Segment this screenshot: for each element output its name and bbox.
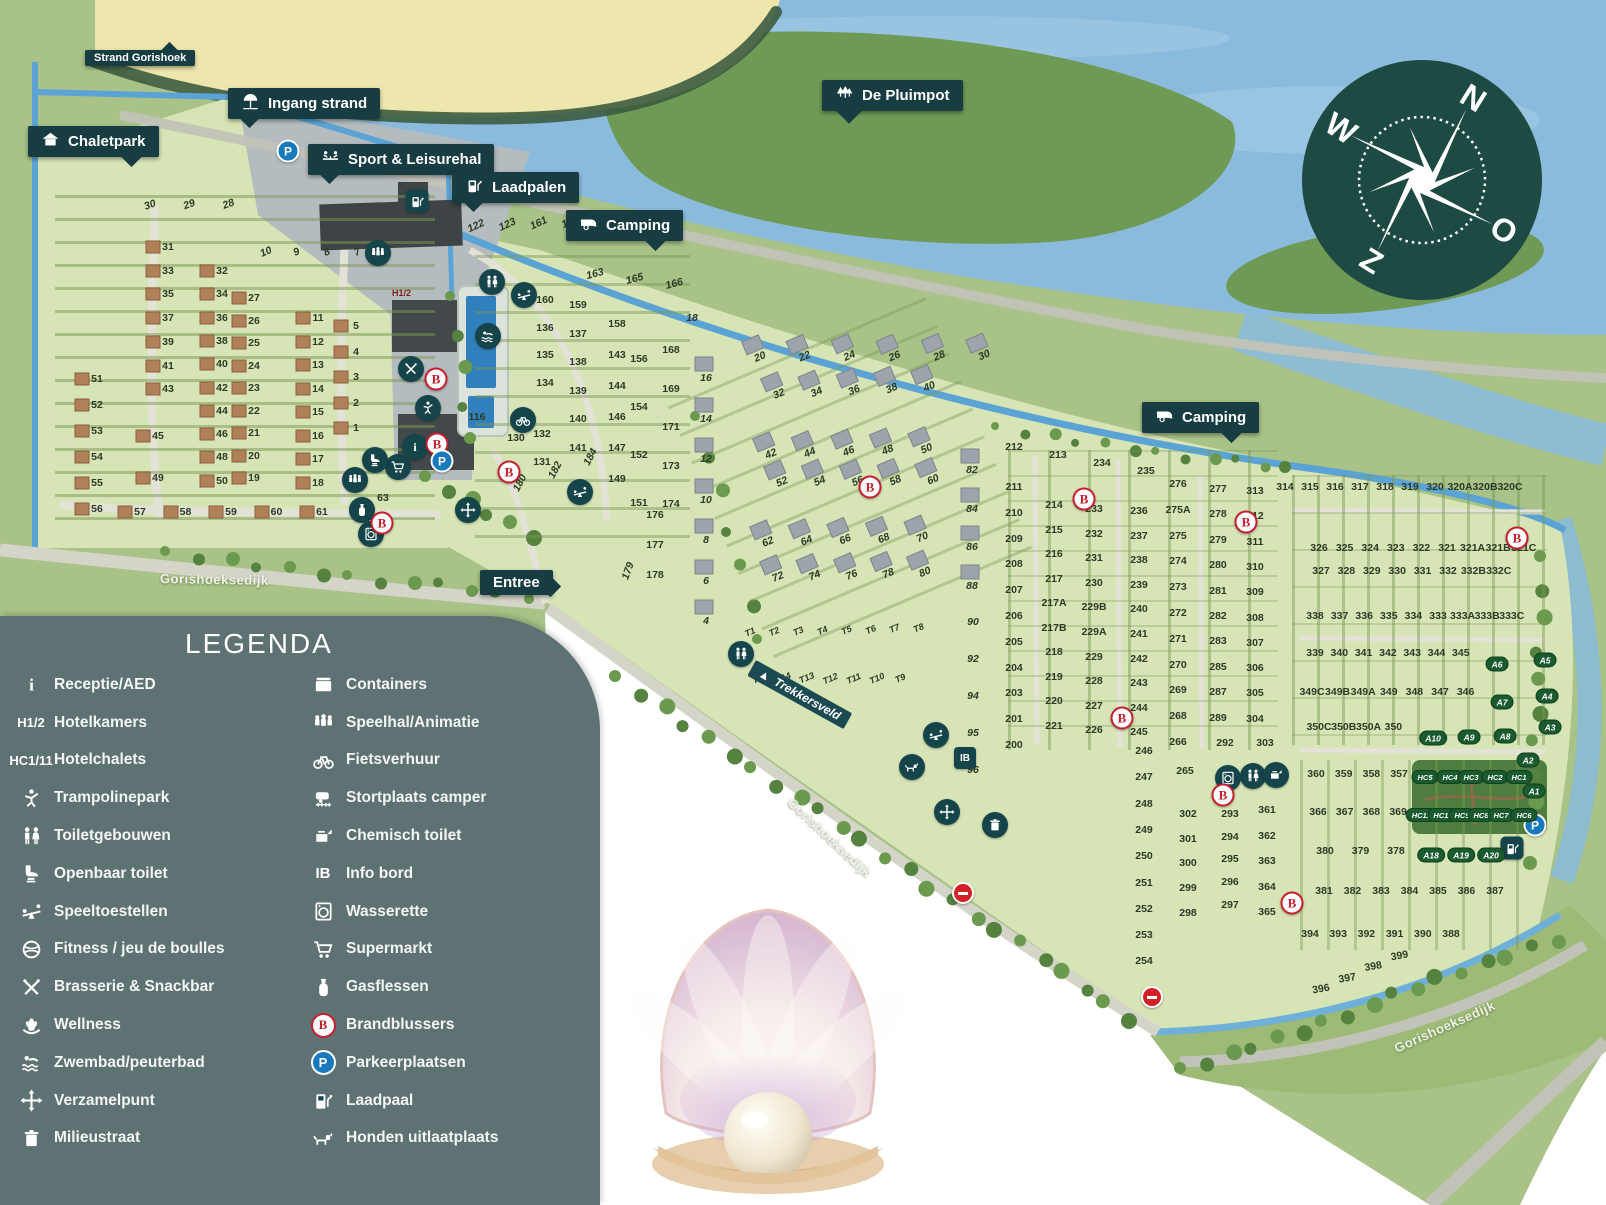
bike-icon bbox=[300, 749, 346, 772]
legend-item-trampoline: Trampolinepark bbox=[8, 779, 225, 817]
chalet-building bbox=[334, 371, 349, 384]
dog-icon bbox=[300, 1127, 346, 1150]
chalet-building bbox=[146, 241, 161, 254]
plot-number: 334 bbox=[1405, 610, 1423, 622]
chalet-building bbox=[200, 404, 215, 417]
plot-number: 32 bbox=[216, 265, 228, 277]
legend-item-chem-toilet: Chemisch toilet bbox=[300, 817, 498, 855]
plot-number: 216 bbox=[1045, 548, 1063, 560]
plot-number: 55 bbox=[91, 477, 103, 489]
chalet-building bbox=[200, 358, 215, 371]
plot-number: 16 bbox=[312, 430, 324, 442]
plot-number: 3 bbox=[353, 371, 359, 383]
plot-number: 38 bbox=[216, 335, 228, 347]
trees-icon bbox=[835, 84, 854, 107]
marker-assembly bbox=[455, 497, 481, 523]
plot-number: 320C bbox=[1497, 481, 1522, 493]
public-toilet-icon bbox=[8, 862, 54, 885]
plot-number: 332 bbox=[1439, 565, 1457, 577]
plot-number: 13 bbox=[312, 359, 324, 371]
camper-hardstanding bbox=[695, 478, 714, 493]
chalet-building bbox=[296, 359, 311, 372]
plot-number: 237 bbox=[1130, 530, 1148, 542]
plot-number: 215 bbox=[1045, 524, 1063, 536]
plot-number: 363 bbox=[1258, 855, 1276, 867]
plot-number: 154 bbox=[630, 401, 648, 413]
swim-icon bbox=[8, 1051, 54, 1074]
chalet-badge-A6: A6 bbox=[1486, 657, 1509, 672]
plot-number: 49 bbox=[152, 472, 164, 484]
chalet-building bbox=[118, 506, 133, 519]
plot-number: 314 bbox=[1276, 481, 1294, 493]
callout-label: Laadpalen bbox=[492, 179, 566, 196]
marker-assembly bbox=[934, 799, 960, 825]
chalet-building bbox=[200, 451, 215, 464]
hc111-icon: HC1/11 bbox=[8, 753, 54, 768]
chalet-badge-A2: A2 bbox=[1517, 753, 1540, 768]
marker-extinguisher: B bbox=[859, 476, 882, 499]
legend-label: Parkeerplaatsen bbox=[346, 1054, 466, 1072]
plot-number: 57 bbox=[134, 506, 146, 518]
chalet-building bbox=[200, 381, 215, 394]
chalet-building bbox=[232, 382, 247, 395]
plot-number: 379 bbox=[1352, 845, 1370, 857]
plot-number: 378 bbox=[1387, 845, 1405, 857]
plot-number: 51 bbox=[91, 373, 103, 385]
chalet-building bbox=[334, 345, 349, 358]
plot-number: 205 bbox=[1005, 636, 1023, 648]
plot-number: 52 bbox=[91, 399, 103, 411]
legend-item-h12: H1/2Hotelkamers bbox=[8, 704, 225, 742]
legend-item-swim: Zwembad/peuterbad bbox=[8, 1044, 225, 1082]
plot-number: 251 bbox=[1135, 877, 1153, 889]
plot-number: 331 bbox=[1414, 565, 1432, 577]
marker-no-entry bbox=[952, 882, 974, 904]
plot-number: 240 bbox=[1130, 603, 1148, 615]
supermarket-icon bbox=[300, 938, 346, 961]
toilets-icon bbox=[8, 825, 54, 848]
plot-number: 6 bbox=[703, 575, 709, 587]
plot-number: 393 bbox=[1329, 928, 1347, 940]
marker-extinguisher: B bbox=[1111, 707, 1134, 730]
road-label-gorishoeksedijk-west: Gorishoeksedijk bbox=[160, 571, 269, 588]
marker-extinguisher: B bbox=[498, 461, 521, 484]
legend-label: Stortplaats camper bbox=[346, 789, 486, 807]
marker-extinguisher: B bbox=[1212, 784, 1235, 807]
chalet-building bbox=[300, 506, 315, 519]
plot-number: 84 bbox=[966, 503, 978, 515]
chalet-building bbox=[334, 422, 349, 435]
plot-number: 271 bbox=[1169, 633, 1187, 645]
plot-number: 234 bbox=[1093, 457, 1111, 469]
plot-number: 289 bbox=[1209, 712, 1227, 724]
gas-icon bbox=[300, 976, 346, 999]
plot-number: 229 bbox=[1085, 651, 1103, 663]
plot-number: 390 bbox=[1414, 928, 1432, 940]
legend-item-fitness: Fitness / jeu de boulles bbox=[8, 931, 225, 969]
plot-number: 361 bbox=[1258, 804, 1276, 816]
marker-waste bbox=[982, 812, 1008, 838]
plot-number: 86 bbox=[966, 541, 978, 553]
legend-item-info-board: IBInfo bord bbox=[300, 855, 498, 893]
plot-number: 248 bbox=[1135, 798, 1153, 810]
plot-number: 227 bbox=[1085, 700, 1103, 712]
callout-label: Camping bbox=[606, 217, 670, 234]
plot-number: 281 bbox=[1209, 585, 1227, 597]
plot-number: 60 bbox=[271, 506, 283, 518]
plot-number: 1 bbox=[353, 422, 359, 434]
chalet-badge-A7: A7 bbox=[1491, 695, 1514, 710]
plot-number: 297 bbox=[1221, 899, 1239, 911]
camper-hardstanding bbox=[695, 438, 714, 453]
legend-label: Containers bbox=[346, 676, 427, 694]
plot-number: 246 bbox=[1135, 745, 1153, 757]
legend-item-speelhal: Speelhal/Animatie bbox=[300, 704, 498, 742]
legend-item-supermarket: Supermarkt bbox=[300, 931, 498, 969]
hotelchalet-badge-HC5: HC5 bbox=[1411, 770, 1438, 784]
marker-parking: P bbox=[431, 450, 454, 473]
plot-number: 338 bbox=[1306, 610, 1324, 622]
plot-number: 95 bbox=[967, 727, 979, 739]
plot-number: 31 bbox=[162, 241, 174, 253]
plot-number: 305 bbox=[1246, 687, 1264, 699]
plot-number: 139 bbox=[569, 385, 587, 397]
plot-number: 302 bbox=[1179, 808, 1197, 820]
legend-label: Laadpaal bbox=[346, 1092, 413, 1110]
plot-number: 245 bbox=[1130, 726, 1148, 738]
chalet-building bbox=[296, 476, 311, 489]
legend-label: Brandblussers bbox=[346, 1016, 455, 1034]
callout-sport-leisurehal: Sport & Leisurehal bbox=[308, 144, 494, 175]
plot-number: 140 bbox=[569, 413, 587, 425]
chalet-building bbox=[296, 312, 311, 325]
plot-number: 320 bbox=[1426, 481, 1444, 493]
plot-number: 25 bbox=[248, 337, 260, 349]
plot-number: 204 bbox=[1005, 662, 1023, 674]
plot-number: 283 bbox=[1209, 635, 1227, 647]
plot-number: 143 bbox=[608, 349, 626, 361]
plot-number: 392 bbox=[1358, 928, 1376, 940]
plot-number: 384 bbox=[1401, 885, 1419, 897]
plot-number: 359 bbox=[1335, 768, 1353, 780]
plot-number: 349B bbox=[1325, 686, 1350, 698]
plot-number: 324 bbox=[1361, 542, 1379, 554]
plot-number: 27 bbox=[248, 292, 260, 304]
plot-number: 282 bbox=[1209, 610, 1227, 622]
plot-number: 316 bbox=[1326, 481, 1344, 493]
plot-number: 299 bbox=[1179, 882, 1197, 894]
plot-number: 387 bbox=[1486, 885, 1504, 897]
plot-number: 217A bbox=[1041, 597, 1066, 609]
legend-item-wellness: Wellness bbox=[8, 1006, 225, 1044]
plot-number: 160 bbox=[536, 294, 554, 306]
marker-extinguisher: B bbox=[425, 368, 448, 391]
chalet-building bbox=[75, 373, 90, 386]
plot-number: 350B bbox=[1331, 721, 1356, 733]
legend-item-public-toilet: Openbaar toilet bbox=[8, 855, 225, 893]
chalet-badge-A4: A4 bbox=[1536, 689, 1559, 704]
plot-number: 12 bbox=[700, 453, 712, 465]
plot-number: 304 bbox=[1246, 713, 1264, 725]
marker-public-toilet bbox=[362, 447, 388, 473]
plot-number: 228 bbox=[1085, 675, 1103, 687]
plot-number: 54 bbox=[91, 451, 103, 463]
plot-number: 383 bbox=[1372, 885, 1390, 897]
plot-number: 46 bbox=[216, 428, 228, 440]
svg-text:i: i bbox=[29, 676, 34, 695]
plot-number: 347 bbox=[1431, 686, 1449, 698]
chalet-building bbox=[136, 430, 151, 443]
marker-charging bbox=[406, 190, 429, 213]
chalet-badge-A1: A1 bbox=[1523, 784, 1546, 799]
tent-icon: ▲ bbox=[756, 666, 773, 684]
plot-number: 156 bbox=[630, 353, 648, 365]
chalet-building bbox=[136, 472, 151, 485]
legend-left-column: iReceptie/AEDH1/2HotelkamersHC1/11Hotelc… bbox=[8, 666, 225, 1157]
legend-item-hc111: HC1/11Hotelchalets bbox=[8, 742, 225, 780]
plot-number: 298 bbox=[1179, 907, 1197, 919]
plot-number: 340 bbox=[1331, 647, 1349, 659]
chalet-building bbox=[200, 428, 215, 441]
legend-label: Gasflessen bbox=[346, 978, 429, 996]
plot-number: 254 bbox=[1135, 955, 1153, 967]
marker-extinguisher: B bbox=[1235, 511, 1258, 534]
legend-label: Verzamelpunt bbox=[54, 1092, 155, 1110]
plot-number: 309 bbox=[1246, 586, 1264, 598]
plot-number: 92 bbox=[967, 653, 979, 665]
plot-number: 345 bbox=[1452, 647, 1470, 659]
plot-number: 2 bbox=[353, 397, 359, 409]
h12-icon: H1/2 bbox=[8, 715, 54, 730]
compass-rose: N O Z W bbox=[1296, 58, 1548, 306]
chalet-building bbox=[75, 477, 90, 490]
callout-camping-east: Camping bbox=[1142, 402, 1259, 433]
callout-label: Chaletpark bbox=[68, 133, 146, 150]
marker-speelhal bbox=[342, 467, 368, 493]
marker-speelhal bbox=[365, 240, 391, 266]
plot-number: 138 bbox=[569, 356, 587, 368]
plot-number: 229B bbox=[1081, 601, 1106, 613]
hotel-rooms-map-label: H1/2 bbox=[392, 288, 411, 298]
chalet-building bbox=[232, 427, 247, 440]
camper-dump-icon bbox=[300, 787, 346, 810]
plot-number: 207 bbox=[1005, 584, 1023, 596]
plot-number: 50 bbox=[216, 475, 228, 487]
callout-label: Entree bbox=[493, 574, 540, 591]
marker-playground bbox=[923, 722, 949, 748]
chalet-building bbox=[334, 320, 349, 333]
plot-number: 173 bbox=[662, 460, 680, 472]
plot-number: 33 bbox=[162, 265, 174, 277]
legend-item-brasserie: Brasserie & Snackbar bbox=[8, 968, 225, 1006]
plot-number: 365 bbox=[1258, 906, 1276, 918]
legend-label: Wellness bbox=[54, 1016, 121, 1034]
callout-label: Strand Gorishoek bbox=[94, 52, 186, 64]
plot-number: 250 bbox=[1135, 850, 1153, 862]
plot-number: 45 bbox=[152, 430, 164, 442]
chalet-building bbox=[232, 404, 247, 417]
plot-number: 369 bbox=[1389, 806, 1407, 818]
plot-number: 16 bbox=[700, 372, 712, 384]
plot-number: 169 bbox=[662, 383, 680, 395]
marker-bike bbox=[510, 407, 536, 433]
plot-number: 34 bbox=[216, 288, 228, 300]
chalet-building bbox=[75, 399, 90, 412]
plot-number: 333 bbox=[1429, 610, 1447, 622]
extinguisher-icon: B bbox=[300, 1013, 346, 1038]
chalet-building bbox=[75, 503, 90, 516]
plot-number: 333C bbox=[1499, 610, 1524, 622]
plot-number: 368 bbox=[1363, 806, 1381, 818]
plot-number: 137 bbox=[569, 328, 587, 340]
plot-number: 149 bbox=[608, 473, 626, 485]
plot-number: 333B bbox=[1475, 610, 1500, 622]
camper-hardstanding bbox=[961, 487, 980, 502]
plot-number: 318 bbox=[1376, 481, 1394, 493]
plot-number: 285 bbox=[1209, 661, 1227, 673]
plot-number: 350A bbox=[1356, 721, 1381, 733]
chalet-building bbox=[75, 425, 90, 438]
plot-number: 320B bbox=[1472, 481, 1497, 493]
plot-number: 292 bbox=[1216, 737, 1234, 749]
plot-number: 226 bbox=[1085, 724, 1103, 736]
plot-number: 380 bbox=[1316, 845, 1334, 857]
marker-playground bbox=[511, 282, 537, 308]
plot-number: 152 bbox=[630, 449, 648, 461]
plot-number: 317 bbox=[1351, 481, 1369, 493]
plot-number: 385 bbox=[1429, 885, 1447, 897]
plot-number: 287 bbox=[1209, 686, 1227, 698]
chalet-building bbox=[200, 311, 215, 324]
marker-swim bbox=[475, 323, 501, 349]
plot-number: 296 bbox=[1221, 876, 1239, 888]
plot-number: 308 bbox=[1246, 612, 1264, 624]
plot-number: 218 bbox=[1045, 646, 1063, 658]
plot-number: 5 bbox=[353, 320, 359, 332]
callout-laadpalen: Laadpalen bbox=[452, 172, 579, 203]
brasserie-icon bbox=[8, 976, 54, 999]
plot-number: 88 bbox=[966, 580, 978, 592]
plot-number: 8 bbox=[703, 534, 709, 546]
callout-label: Ingang strand bbox=[268, 95, 367, 112]
legend-label: Wasserette bbox=[346, 903, 428, 921]
plot-number: 136 bbox=[536, 322, 554, 334]
playground-icon bbox=[8, 900, 54, 923]
hotelchalet-badge-HC6: HC6 bbox=[1510, 808, 1537, 822]
plot-number: 238 bbox=[1130, 554, 1148, 566]
legend-item-camper-dump: Stortplaats camper bbox=[300, 779, 498, 817]
plot-number: 201 bbox=[1005, 713, 1023, 725]
legend-label: Speelhal/Animatie bbox=[346, 714, 480, 732]
marker-chem-toilet bbox=[1263, 762, 1289, 788]
plot-number: 394 bbox=[1301, 928, 1319, 940]
plot-number: 323 bbox=[1387, 542, 1405, 554]
plot-number: 329 bbox=[1363, 565, 1381, 577]
plot-number: 212 bbox=[1005, 441, 1023, 453]
plot-number: 247 bbox=[1135, 771, 1153, 783]
plot-number: 366 bbox=[1309, 806, 1327, 818]
plot-number: 22 bbox=[248, 405, 260, 417]
plot-number: 360 bbox=[1307, 768, 1325, 780]
chalet-building bbox=[146, 264, 161, 277]
chalet-badge-A8: A8 bbox=[1494, 729, 1517, 744]
plot-number: 300 bbox=[1179, 857, 1197, 869]
plot-number: 344 bbox=[1428, 647, 1446, 659]
plot-number: 94 bbox=[967, 690, 979, 702]
marker-trampoline bbox=[415, 395, 441, 421]
plot-number: 14 bbox=[312, 383, 324, 395]
chalet-house-icon bbox=[41, 130, 60, 153]
plot-number: 349C bbox=[1299, 686, 1324, 698]
plot-number: 235 bbox=[1137, 465, 1155, 477]
chalet-building bbox=[296, 453, 311, 466]
plot-number: 21 bbox=[248, 427, 260, 439]
plot-number: 134 bbox=[536, 377, 554, 389]
hotelchalet-badge-HC3: HC3 bbox=[1457, 770, 1484, 784]
plot-number: 20 bbox=[248, 450, 260, 462]
callout-camping-west: Camping bbox=[566, 210, 683, 241]
wellness-icon bbox=[8, 1014, 54, 1037]
legend-panel: LEGENDA iReceptie/AEDH1/2HotelkamersHC1/… bbox=[0, 616, 600, 1205]
plot-number: 381 bbox=[1315, 885, 1333, 897]
plot-number: 36 bbox=[216, 312, 228, 324]
chalet-building bbox=[146, 288, 161, 301]
legend-item-charging: Laadpaal bbox=[300, 1082, 498, 1120]
beach-umbrella-icon bbox=[241, 92, 260, 115]
legend-label: Fietsverhuur bbox=[346, 751, 440, 769]
plot-number: 40 bbox=[216, 358, 228, 370]
plot-number: 315 bbox=[1301, 481, 1319, 493]
plot-number: 319 bbox=[1401, 481, 1419, 493]
plot-number: 48 bbox=[216, 451, 228, 463]
plot-number: 280 bbox=[1209, 559, 1227, 571]
plot-number: 43 bbox=[162, 383, 174, 395]
legend-item-extinguisher: BBrandblussers bbox=[300, 1006, 498, 1044]
containers-icon bbox=[300, 673, 346, 696]
legend-item-reception: iReceptie/AED bbox=[8, 666, 225, 704]
plot-number: 171 bbox=[662, 421, 680, 433]
marker-extinguisher: B bbox=[1506, 527, 1529, 550]
caravan-icon bbox=[1155, 406, 1174, 429]
chalet-building bbox=[296, 429, 311, 442]
table-tennis-icon bbox=[321, 148, 340, 171]
chalet-badge-A3: A3 bbox=[1539, 720, 1562, 735]
plot-number: 272 bbox=[1169, 607, 1187, 619]
holiday-park-map: 3133353739414332343638404244464850272625… bbox=[0, 0, 1606, 1205]
caravan-icon bbox=[579, 214, 598, 237]
plot-number: 307 bbox=[1246, 637, 1264, 649]
plot-number: 236 bbox=[1130, 505, 1148, 517]
chalet-building bbox=[146, 359, 161, 372]
chalet-building bbox=[254, 506, 269, 519]
chalet-building bbox=[146, 312, 161, 325]
plot-number: 200 bbox=[1005, 739, 1023, 751]
plot-number: 239 bbox=[1130, 579, 1148, 591]
marker-brasserie bbox=[398, 356, 424, 382]
plot-number: 131 bbox=[533, 456, 551, 468]
chalet-building bbox=[232, 359, 247, 372]
plot-number: 313 bbox=[1246, 485, 1264, 497]
legend-label: Honden uitlaatplaats bbox=[346, 1129, 498, 1147]
legend-label: Info bord bbox=[346, 865, 413, 883]
info-board-icon: IB bbox=[300, 865, 346, 882]
camper-hardstanding bbox=[961, 526, 980, 541]
plot-number: 322 bbox=[1413, 542, 1431, 554]
legend-item-gas: Gasflessen bbox=[300, 968, 498, 1006]
plot-number: 279 bbox=[1209, 534, 1227, 546]
plot-number: 147 bbox=[608, 442, 626, 454]
chalet-building bbox=[200, 265, 215, 278]
